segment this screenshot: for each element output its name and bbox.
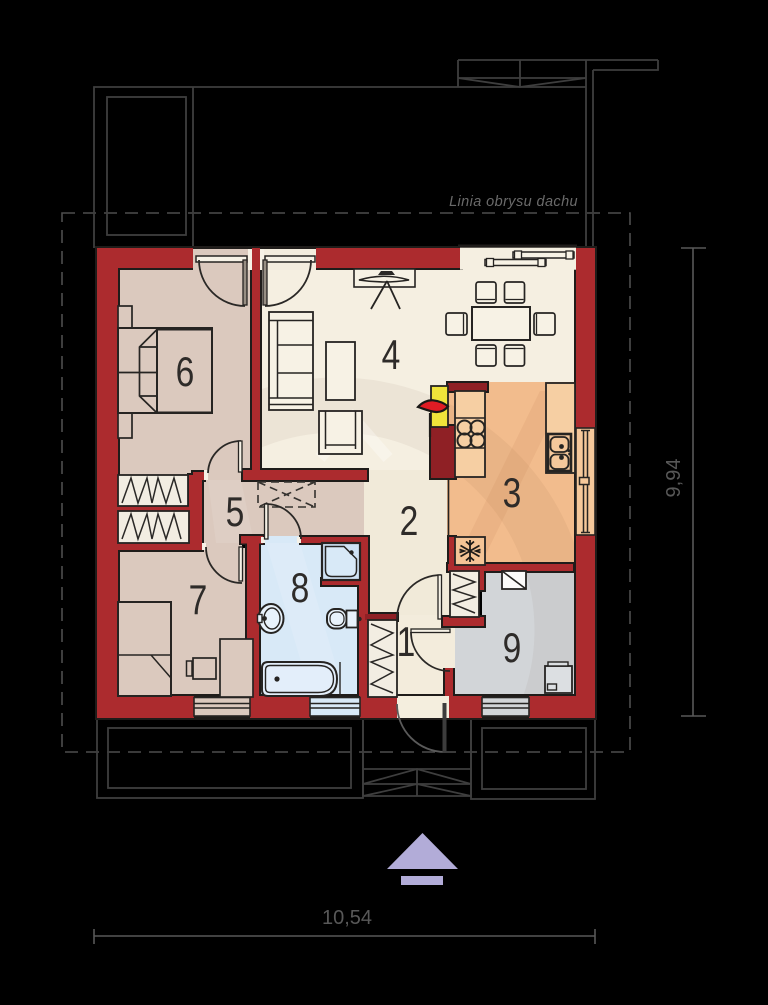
- svg-text:Linia obrysu dachu: Linia obrysu dachu: [449, 194, 578, 210]
- svg-text:4: 4: [382, 333, 401, 379]
- svg-text:10,54: 10,54: [322, 907, 372, 929]
- svg-text:9: 9: [503, 626, 522, 672]
- svg-text:2: 2: [400, 499, 419, 545]
- svg-text:5: 5: [226, 490, 245, 536]
- svg-text:7: 7: [189, 578, 208, 624]
- svg-text:6: 6: [176, 350, 195, 396]
- svg-text:9,94: 9,94: [663, 459, 685, 498]
- svg-text:1: 1: [397, 620, 416, 666]
- svg-text:8: 8: [291, 566, 310, 612]
- svg-text:3: 3: [503, 471, 522, 517]
